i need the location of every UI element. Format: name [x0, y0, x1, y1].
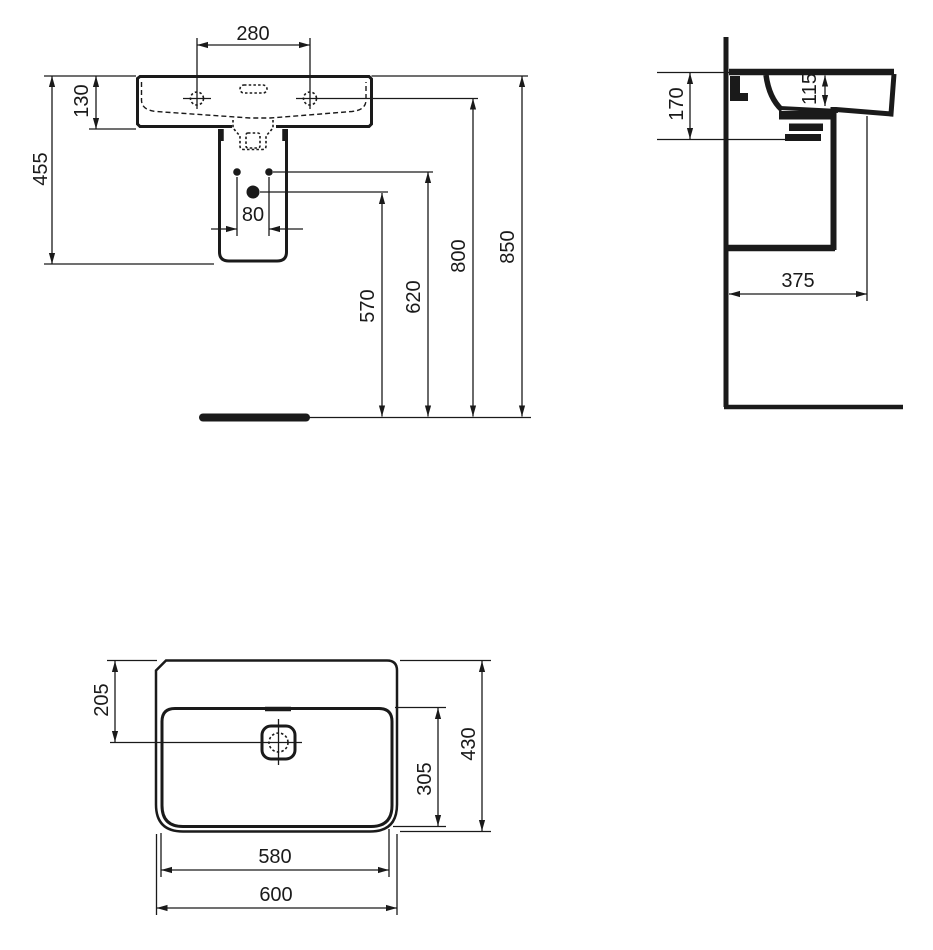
- bowl-hidden-contour: [142, 82, 367, 118]
- dim-label-580: 580: [258, 846, 291, 868]
- dim-label-455: 455: [30, 152, 52, 185]
- side-view: 170 115 375: [657, 37, 903, 407]
- trap-flange: [779, 111, 831, 120]
- plan-view: 205 305 430 580 600: [91, 661, 491, 916]
- dim-label-280: 280: [236, 23, 269, 45]
- technical-drawing: 280 130 455 80 570 620 800 850: [0, 0, 933, 950]
- trap-body: [789, 124, 823, 132]
- basin-front-profile: [836, 74, 894, 114]
- drawing-svg: 280 130 455 80 570 620 800 850: [0, 0, 933, 950]
- fixing-hole-right: [265, 168, 273, 176]
- dim-label-600: 600: [259, 884, 292, 906]
- basin-outline: [138, 77, 372, 127]
- dim-label-850: 850: [497, 230, 519, 263]
- drain-outlet-hole: [247, 186, 260, 199]
- overflow-slot: [240, 85, 267, 93]
- dim-label-205: 205: [91, 683, 113, 716]
- dim-label-430: 430: [458, 727, 480, 760]
- dim-label-80: 80: [242, 204, 264, 226]
- bowl-bottom-line: [780, 108, 838, 111]
- front-view: 280 130 455 80 570 620 800 850: [30, 23, 531, 418]
- drain-funnel: [233, 120, 273, 150]
- dim-label-375: 375: [781, 270, 814, 292]
- dim-label-800: 800: [448, 239, 470, 272]
- bowl-back-profile: [766, 75, 782, 110]
- dim-label-620: 620: [403, 280, 425, 313]
- dim-label-115: 115: [799, 73, 821, 105]
- dim-label-170: 170: [666, 87, 688, 120]
- fixing-hole-left: [233, 168, 241, 176]
- mounting-lug-foot: [730, 93, 748, 101]
- waste-fitting: [246, 133, 260, 148]
- dim-label-570: 570: [357, 289, 379, 322]
- plan-outer-outline: [156, 661, 397, 832]
- dim-label-305: 305: [414, 762, 436, 795]
- dim-label-130: 130: [71, 84, 93, 117]
